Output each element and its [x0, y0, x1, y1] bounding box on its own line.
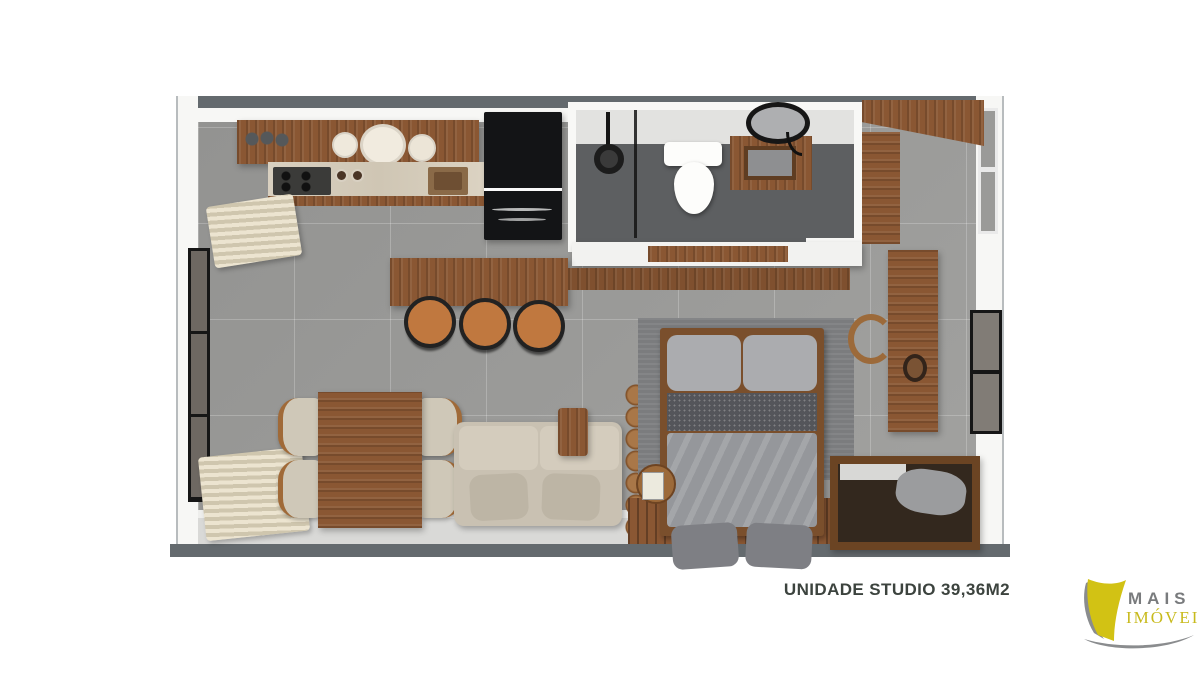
logo-swoosh-icon	[1082, 633, 1196, 651]
bed-pillow-1	[667, 335, 741, 391]
bathroom	[568, 102, 862, 252]
bed-pillow-2	[743, 335, 817, 391]
sofa-back-cushion-1	[459, 426, 538, 470]
counter-bowl-1	[335, 169, 348, 182]
unit-caption: UNIDADE STUDIO 39,36M2	[784, 580, 1010, 600]
window-right	[970, 310, 1002, 434]
plate-small	[332, 132, 358, 158]
bed-foot-pillow-1	[671, 522, 740, 570]
counter-front-edge	[268, 196, 490, 206]
bar-stool-2	[459, 298, 511, 350]
oven-line-2	[498, 218, 546, 221]
desk	[888, 250, 938, 432]
shower-glass-partition	[634, 110, 637, 238]
nightstand-clock	[642, 472, 664, 500]
sofa-pillow-2	[541, 473, 601, 521]
bed-duvet	[667, 433, 817, 527]
media-console-inset	[648, 246, 788, 262]
dining-chair-2	[278, 460, 322, 518]
shower-head	[594, 144, 624, 174]
bar-shelf	[568, 268, 850, 290]
floorplan	[170, 92, 1010, 565]
sofa-pillow-1	[469, 473, 529, 522]
bed-knit-band	[667, 393, 817, 431]
kitchen-sink-basin	[434, 172, 462, 190]
refrigerator-handle	[484, 188, 562, 191]
counter-bowl-2	[351, 169, 364, 182]
dining-chair-1	[278, 398, 322, 456]
bar-stool-3	[513, 300, 565, 352]
logo-name: MAIS	[1128, 589, 1191, 609]
cooktop	[273, 167, 331, 195]
spice-jars	[244, 130, 292, 148]
shower-arm	[606, 112, 610, 146]
desk-chair	[848, 314, 894, 364]
logo-suffix: IMÓVEIS	[1126, 608, 1200, 628]
oven-line-1	[492, 208, 552, 211]
bar-stool-1	[404, 296, 456, 348]
chest-lining	[840, 464, 906, 480]
vanity-sink	[744, 146, 796, 180]
mais-imoveis-logo: MAIS IMÓVEIS	[1080, 577, 1200, 663]
dining-table	[318, 392, 422, 528]
desk-knob	[903, 354, 927, 382]
plate-bowl	[408, 134, 436, 162]
real-estate-floorplan-page: UNIDADE STUDIO 39,36M2 MAIS IMÓVEIS	[0, 0, 1200, 675]
wardrobe-side	[862, 132, 900, 244]
bed-foot-pillow-2	[745, 522, 813, 569]
side-table	[558, 408, 588, 456]
plate-large	[360, 124, 406, 166]
